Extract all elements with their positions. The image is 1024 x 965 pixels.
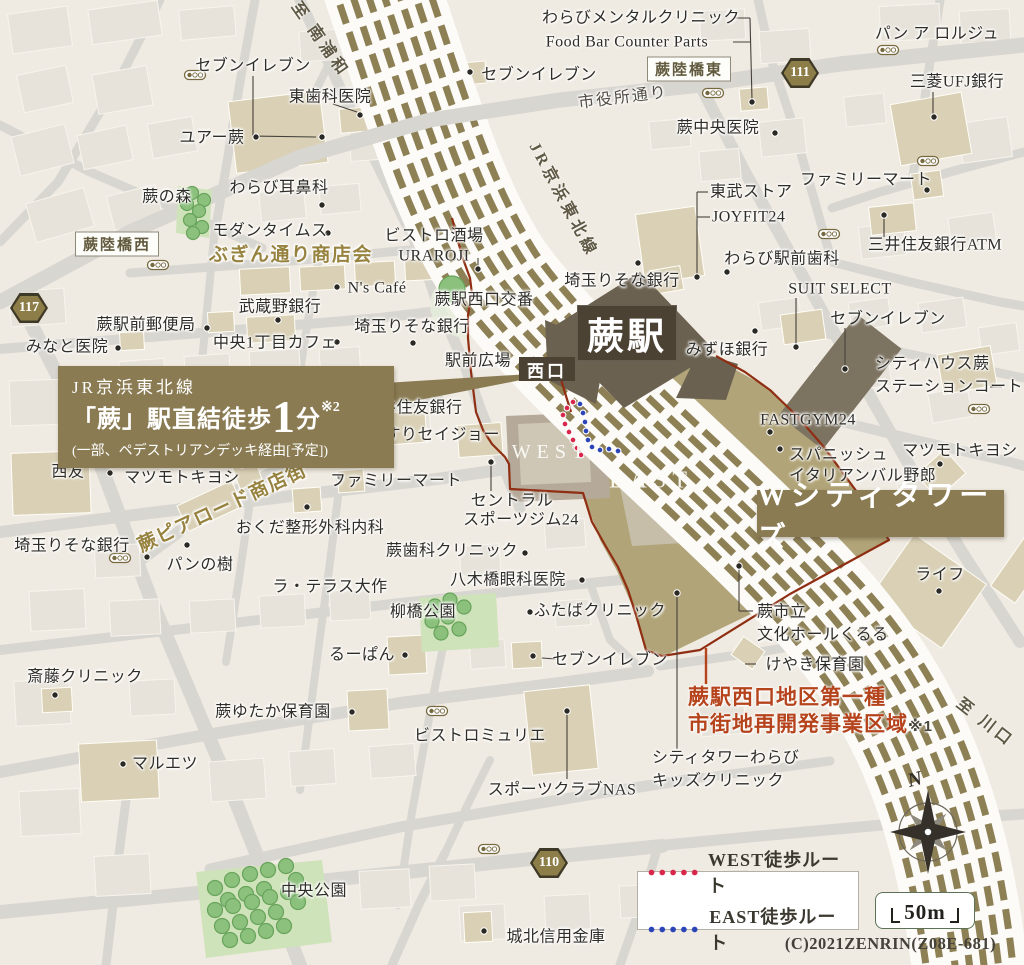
project-title: Wシティタワーズ — [757, 472, 1004, 556]
map-label: セブンイレブン — [552, 650, 668, 669]
route-number-badge: 110 — [530, 848, 568, 878]
map-label: ぶぎん通り商店会 — [209, 245, 373, 268]
map-label: JOYFIT24 — [712, 207, 785, 226]
redevelopment-line1: 蕨駅西口地区第一種 — [688, 684, 933, 711]
map-label: スパニッシュ — [789, 445, 888, 464]
scale-tick-left — [891, 908, 900, 923]
access-map: N セブンイレブンセブンイレブン東歯科医院ユアー蕨蕨の森わらび耳鼻科モダンタイム… — [0, 0, 1024, 965]
map-label: ユアー蕨 — [179, 128, 244, 147]
badge-number: 117 — [10, 293, 48, 323]
station-name-box: 蕨駅 — [577, 305, 677, 361]
map-label: るーぱん — [329, 645, 395, 664]
route-number-badge: 111 — [781, 58, 819, 88]
map-label: ステーションコート — [875, 377, 1023, 396]
callout-unit: 分 — [296, 407, 321, 433]
project-title-box: Wシティタワーズ — [757, 490, 1004, 537]
map-label: WEST — [512, 440, 590, 464]
map-label: 蕨の森 — [142, 187, 192, 206]
map-label: けやき保育園 — [765, 655, 864, 674]
map-label: モダンタイムス — [212, 221, 327, 240]
map-label: ライフ — [915, 565, 965, 584]
legend-west-label: WEST徒歩ルート — [708, 846, 848, 898]
map-label: 中央1丁目カフェ — [213, 333, 337, 352]
map-label: マツモトキヨシ — [902, 441, 1018, 460]
map-label: わらび駅前歯科 — [724, 249, 840, 268]
map-label: スポーツクラブNAS — [488, 780, 637, 799]
badge-number: 110 — [530, 848, 568, 878]
map-label: 三井住友銀行ATM — [868, 235, 1002, 254]
map-label: みなと医院 — [26, 337, 109, 356]
map-label: 蕨歯科クリニック — [386, 541, 518, 560]
route-legend: WEST徒歩ルート EAST徒歩ルート — [637, 871, 859, 930]
map-label: セントラル — [471, 491, 554, 510]
map-label: 文化ホールくるる — [757, 625, 889, 644]
map-label: 蕨駅西口交番 — [434, 290, 533, 309]
map-label: 蕨ゆたか保育園 — [215, 702, 331, 721]
map-label: 三菱UFJ銀行 — [910, 72, 1004, 91]
map-label: 東歯科医院 — [289, 87, 372, 106]
access-callout: JR京浜東北線 「蕨」駅直結徒歩1分※2 (一部、ペデストリアンデッキ経由[予定… — [58, 366, 394, 468]
bridge-sign: 蕨陸橋東 — [647, 57, 731, 82]
map-label: 埼玉りそな銀行 — [354, 317, 470, 336]
map-label: わらび耳鼻科 — [229, 178, 328, 197]
map-label: ファミリーマート — [330, 471, 462, 490]
map-label: 駅前広場 — [445, 351, 511, 370]
route-number-badge: 117 — [10, 293, 48, 323]
callout-main: 「蕨」駅直結徒歩1分※2 — [72, 399, 386, 436]
map-label: 蕨中央医院 — [677, 118, 760, 137]
map-label: 城北信用金庫 — [506, 927, 605, 946]
redevelopment-note: 蕨駅西口地区第一種 市街地再開発事業区域※1 — [688, 684, 933, 740]
map-label: マルエツ — [132, 754, 198, 773]
map-label: 柳橋公園 — [390, 602, 456, 621]
scale-value: 50m — [904, 902, 946, 923]
map-label: FASTGYM24 — [760, 410, 856, 429]
station-name: 蕨駅 — [587, 306, 667, 360]
map-label: パン ア ロルジュ — [875, 24, 999, 43]
legend-west-row: WEST徒歩ルート — [648, 846, 848, 898]
redevelopment-ref: ※1 — [908, 718, 933, 735]
badge-number: 111 — [781, 58, 819, 88]
map-label: セブンイレブン — [830, 309, 946, 328]
map-label: パンの樹 — [167, 555, 234, 574]
copyright-text: (C)2021ZENRIN(Z08E-681) — [757, 934, 1024, 954]
bridge-sign: 蕨陸橋西 — [75, 232, 159, 257]
map-label: 至 川口 — [952, 695, 1017, 752]
scale-bar: 50m — [875, 892, 975, 929]
map-label: ラ・テラス大作 — [272, 577, 387, 596]
map-label: 埼玉りそな銀行 — [564, 271, 680, 290]
map-label: 中央公園 — [281, 881, 347, 900]
map-label: シティハウス蕨 — [875, 354, 990, 373]
map-label: みずほ銀行 — [686, 340, 769, 359]
map-label: おくだ整形外科内科 — [236, 518, 385, 537]
map-label: セブンイレブン — [481, 65, 597, 84]
map-label: 市役所通り — [577, 83, 669, 113]
callout-line: JR京浜東北線 — [72, 373, 386, 398]
redevelopment-line2: 市街地再開発事業区域※1 — [688, 711, 933, 740]
callout-sub: (一部、ペデストリアンデッキ経由[予定]) — [72, 440, 386, 460]
map-label: URAROJI — [398, 246, 469, 265]
map-label: JR京浜東北線 — [525, 139, 602, 261]
west-gate-label: 西口 — [527, 357, 567, 382]
map-label: 蕨駅前郵便局 — [96, 315, 195, 334]
map-label: スポーツジム24 — [463, 510, 579, 529]
map-label: ふたばクリニック — [534, 601, 666, 620]
west-gate-box: 西口 — [519, 357, 575, 381]
map-label: ビストロ酒場 — [384, 226, 483, 245]
map-label: SUIT SELECT — [788, 279, 891, 298]
map-label: 東武ストア — [710, 182, 793, 201]
callout-text: 「蕨」駅直結徒歩 — [72, 407, 272, 433]
east-route-swatch — [648, 926, 699, 933]
map-label: わらびメンタルクリニック — [542, 8, 740, 27]
map-label: ビストロミュリエ — [414, 726, 546, 745]
callout-minutes: 1 — [272, 391, 296, 442]
map-label: セブンイレブン — [195, 56, 311, 75]
redevelopment-line2-text: 市街地再開発事業区域 — [688, 713, 908, 736]
map-label: 武蔵野銀行 — [239, 297, 322, 316]
callout-note: ※2 — [321, 400, 340, 415]
map-label: マツモトキヨシ — [124, 468, 240, 487]
map-label: シティタワーわらび — [652, 748, 800, 767]
map-label: N's Café — [348, 278, 407, 297]
scale-tick-right — [950, 908, 959, 923]
map-label: 埼玉りそな銀行 — [14, 536, 130, 555]
map-label: 蕨市立 — [757, 602, 807, 621]
map-label: EAST — [609, 467, 693, 496]
west-route-swatch — [648, 869, 698, 876]
map-label: ファミリーマート — [800, 170, 932, 189]
map-label: 八木橋眼科医院 — [450, 570, 566, 589]
map-label: キッズクリニック — [652, 771, 784, 790]
map-label: 斎藤クリニック — [27, 667, 143, 686]
map-label: Food Bar Counter Parts — [546, 32, 709, 51]
